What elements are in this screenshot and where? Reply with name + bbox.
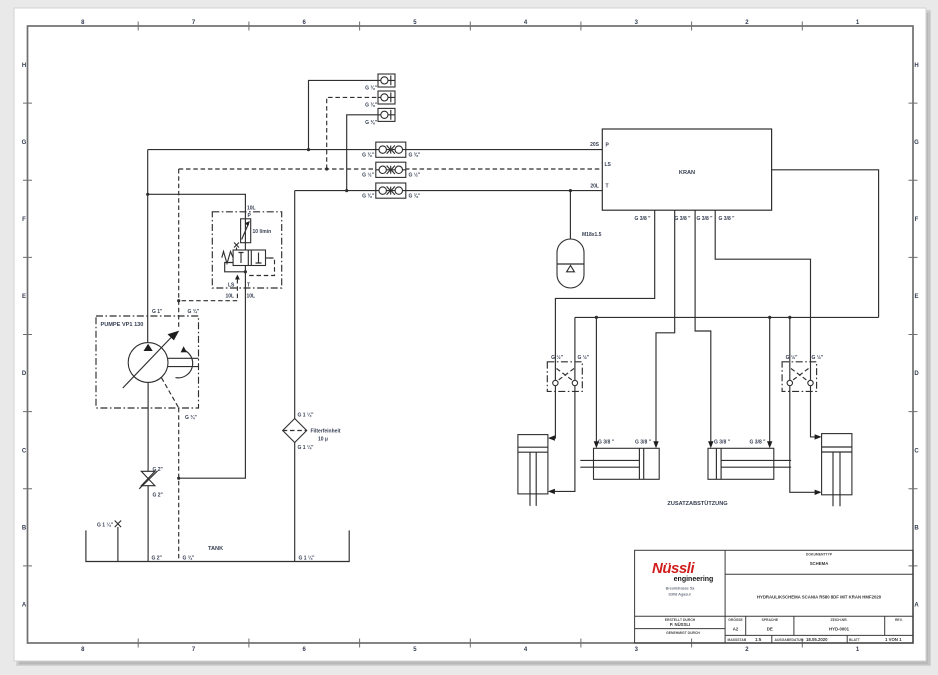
svg-text:D: D (914, 371, 919, 377)
svg-text:G ⅜": G ⅜" (409, 193, 421, 199)
svg-text:10 l/min: 10 l/min (253, 229, 272, 235)
svg-text:G: G (914, 140, 919, 146)
svg-text:G 1 ¼": G 1 ¼" (298, 412, 315, 419)
svg-text:G: G (22, 140, 27, 146)
svg-text:TANK: TANK (208, 546, 223, 552)
svg-text:LS: LS (228, 283, 235, 289)
svg-text:H: H (22, 63, 26, 69)
svg-text:engineering: engineering (674, 576, 714, 583)
svg-text:G 3/8 ": G 3/8 " (598, 440, 615, 446)
svg-text:G ⅜": G ⅜" (365, 86, 377, 92)
svg-text:KRAN: KRAN (679, 170, 695, 176)
svg-text:G 1": G 1" (152, 309, 163, 315)
svg-text:1:5: 1:5 (755, 637, 762, 642)
svg-text:G ¾": G ¾" (185, 414, 197, 421)
svg-text:Filterfeinheit: Filterfeinheit (311, 429, 341, 435)
svg-text:MASSSTAB: MASSSTAB (728, 638, 747, 642)
svg-text:SCHEMA: SCHEMA (810, 561, 829, 566)
svg-text:G 3/8 ": G 3/8 " (675, 216, 692, 222)
svg-text:10 µ: 10 µ (318, 437, 328, 443)
svg-text:D: D (22, 371, 27, 377)
svg-text:H: H (914, 63, 918, 69)
svg-text:BLATT: BLATT (849, 638, 861, 642)
svg-text:P. NÜSSLI: P. NÜSSLI (670, 622, 690, 627)
svg-text:AUSGABEDATUM: AUSGABEDATUM (775, 638, 804, 642)
svg-text:T: T (606, 184, 609, 190)
svg-text:Nüssli: Nüssli (652, 560, 695, 577)
svg-text:DOKUMENTTYP: DOKUMENTTYP (806, 553, 833, 557)
svg-text:8308 Agasul: 8308 Agasul (668, 592, 690, 597)
svg-text:A: A (914, 603, 919, 609)
svg-text:G ½": G ½" (362, 172, 374, 179)
svg-text:G 3/8 ": G 3/8 " (719, 216, 736, 222)
svg-text:G 3/8 ": G 3/8 " (697, 216, 714, 222)
svg-text:SPRACHE: SPRACHE (762, 618, 779, 622)
svg-text:C: C (914, 448, 919, 454)
svg-text:ZUSATZABSTÜTZUNG: ZUSATZABSTÜTZUNG (667, 500, 727, 507)
svg-text:20L: 20L (590, 184, 599, 190)
svg-text:G 3/8 ": G 3/8 " (750, 440, 767, 446)
svg-text:G ½": G ½" (786, 354, 798, 361)
svg-text:F: F (915, 217, 919, 223)
svg-text:B: B (22, 525, 27, 531)
svg-text:T: T (247, 283, 250, 289)
svg-text:1 VON 1: 1 VON 1 (885, 637, 902, 642)
svg-text:REV.: REV. (895, 618, 903, 622)
svg-text:GRÖSSE: GRÖSSE (728, 617, 743, 622)
svg-text:HYDRAULIKSCHEMA SCANIA R580 8D: HYDRAULIKSCHEMA SCANIA R580 8DF MIT KRAN… (757, 595, 882, 600)
svg-text:G 2": G 2" (153, 493, 164, 499)
svg-text:G 1 ¼": G 1 ¼" (299, 555, 316, 562)
svg-text:C: C (22, 448, 27, 454)
svg-text:G 2": G 2" (152, 556, 163, 562)
svg-text:GENEHMIGT DURCH: GENEHMIGT DURCH (666, 631, 700, 635)
svg-text:PUMPE VP1 130: PUMPE VP1 130 (101, 322, 144, 328)
svg-text:G 1 ¼": G 1 ¼" (298, 444, 315, 451)
svg-text:ZEICH.NR.: ZEICH.NR. (831, 618, 848, 622)
svg-text:G ⅜": G ⅜" (362, 152, 374, 158)
svg-text:A: A (22, 603, 27, 609)
svg-text:B: B (914, 525, 919, 531)
svg-text:10L: 10L (247, 206, 256, 212)
svg-text:10L: 10L (247, 294, 256, 300)
svg-text:18.05.2020: 18.05.2020 (806, 637, 828, 642)
svg-text:G ¾": G ¾" (188, 308, 200, 315)
svg-text:G ⅜": G ⅜" (365, 120, 377, 126)
svg-text:Breulistrasse 5a: Breulistrasse 5a (666, 586, 695, 591)
svg-text:G ¾": G ¾" (183, 555, 195, 562)
svg-text:G 1 ¼": G 1 ¼" (97, 522, 114, 529)
svg-text:A2: A2 (733, 627, 739, 632)
svg-text:G 3/8 ": G 3/8 " (635, 216, 652, 222)
svg-text:G ½": G ½" (409, 172, 421, 179)
svg-text:LS: LS (605, 162, 612, 168)
svg-text:M18x1.5: M18x1.5 (582, 232, 602, 238)
svg-text:HYD-0001: HYD-0001 (829, 627, 850, 632)
svg-text:20S: 20S (590, 142, 600, 148)
svg-text:G 3/8 ": G 3/8 " (635, 440, 652, 446)
svg-text:G ½": G ½" (551, 354, 563, 361)
svg-text:10L: 10L (226, 294, 235, 300)
svg-text:E: E (914, 294, 918, 300)
svg-text:G ½": G ½" (578, 354, 590, 361)
svg-text:F: F (22, 217, 26, 223)
svg-text:G ⅜": G ⅜" (365, 103, 377, 109)
svg-text:G 3/8 ": G 3/8 " (714, 440, 731, 446)
svg-text:G ⅜": G ⅜" (409, 152, 421, 158)
svg-text:G ⅜": G ⅜" (362, 193, 374, 199)
svg-text:E: E (22, 294, 26, 300)
svg-text:DE: DE (767, 627, 773, 632)
svg-text:G ½": G ½" (812, 354, 824, 361)
